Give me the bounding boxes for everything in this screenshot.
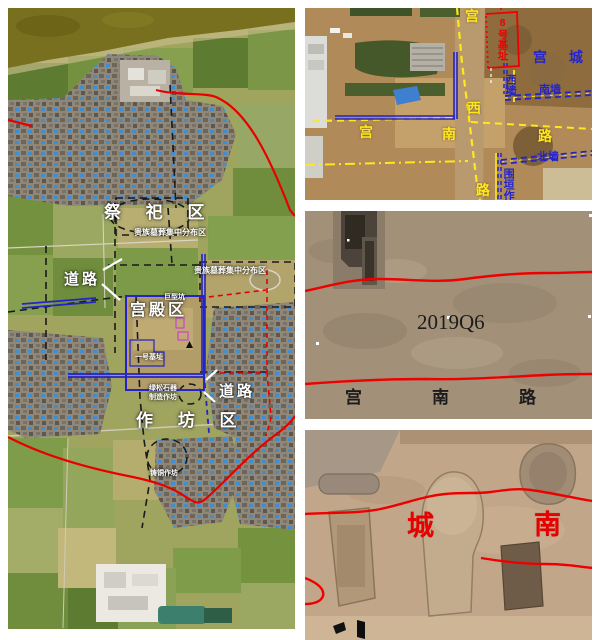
label-road-xi-v: 西 xyxy=(467,101,481,116)
label-north-wall: 北墙 xyxy=(537,151,559,163)
label-road-nw: 道路 xyxy=(64,272,100,289)
label-foundation-8: 8号基址 xyxy=(496,17,508,67)
label-road-gong-h: 宫 xyxy=(359,125,373,140)
label-south-wall: 南墙 xyxy=(539,84,561,96)
label-road-lu-v: 路 xyxy=(476,183,490,198)
label-turquoise-workshop-2: 制造作坊 xyxy=(149,394,177,402)
label-foundation-one: 一号基址 xyxy=(135,354,163,362)
label-west-wall: 西墙 xyxy=(504,74,516,96)
label-palace-city: 宫 城 xyxy=(533,50,592,65)
aerial-terrain xyxy=(305,8,592,200)
label-noble-tombs-b: 贵族墓葬集中分布区 xyxy=(194,267,266,276)
palace-aerial-panel: 宫 西 路 宫 南 路 8号基址 宫 城 西墙 南墙 北墙 围垣作 xyxy=(305,8,592,200)
figure-canvas: 祭 祀 区 贵族墓葬集中分布区 贵族墓葬集中分布区 道路 宫殿区 巨型坑 一号基… xyxy=(0,0,600,640)
site-map-panel: 祭 祀 区 贵族墓葬集中分布区 贵族墓葬集中分布区 道路 宫殿区 巨型坑 一号基… xyxy=(8,8,295,629)
palace-aerial-image xyxy=(305,8,592,200)
label-trench-id: 2019Q6 xyxy=(417,311,485,334)
zone-label-sacrificial: 祭 祀 区 xyxy=(104,204,214,223)
label-noble-tombs-a: 贵族墓葬集中分布区 xyxy=(134,229,206,238)
label-giant-pit: 巨型坑 xyxy=(164,294,185,302)
label-bronze-workshop: 铸铜作坊 xyxy=(150,470,178,478)
label-city: 城 xyxy=(407,512,434,542)
pits-photo-panel: 城 南 xyxy=(305,430,592,640)
label-road-gong-v: 宫 xyxy=(465,9,479,24)
label-road-nan-h: 南 xyxy=(442,127,456,142)
trench-photo-panel: 2019Q6 宫南路 xyxy=(305,211,592,419)
label-road-lu-h: 路 xyxy=(538,129,552,144)
label-road-se: 道路 xyxy=(219,384,255,401)
zone-label-workshop: 作 坊 区 xyxy=(136,412,246,431)
zone-label-palace: 宫殿区 xyxy=(130,302,187,320)
label-enclosure-workshop: 围垣作 xyxy=(502,168,514,200)
label-south: 南 xyxy=(534,511,561,541)
label-turquoise-workshop-1: 绿松石器 xyxy=(149,385,177,393)
label-gongnan-road: 宫南路 xyxy=(345,389,592,408)
